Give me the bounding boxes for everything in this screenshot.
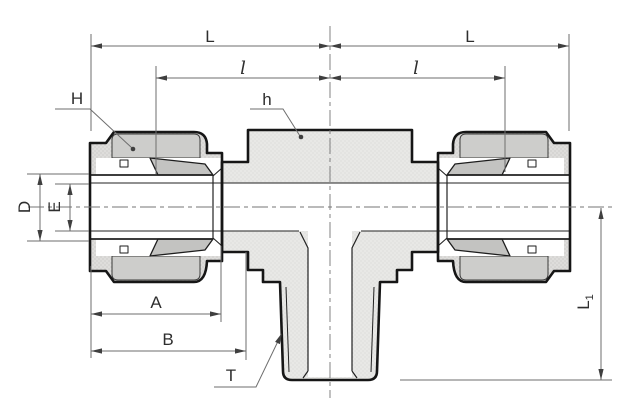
left-nut-lower-band [112, 256, 200, 280]
label-A: A [150, 293, 162, 312]
label-L1-subscript: 1 [584, 294, 596, 300]
arrow-L-left-a [91, 43, 102, 48]
arrow-A-left [91, 311, 102, 316]
label-D: D [15, 201, 34, 213]
arrow-l-right-a [330, 75, 341, 80]
fitting-technical-drawing: L L l l H h D E A B T L1 [0, 0, 629, 412]
label-h: h [262, 90, 271, 109]
arrow-D-top [37, 174, 42, 185]
arrow-D-bottom [37, 230, 42, 241]
arrow-E-top [67, 184, 72, 195]
arrow-l-left-b [319, 75, 330, 80]
arrow-L-left-b [319, 43, 330, 48]
arrow-L1-top [598, 208, 603, 219]
left-bottom-notch [120, 246, 128, 253]
arrow-E-bottom [67, 220, 72, 231]
left-top-notch [120, 160, 128, 167]
right-bottom-notch [528, 246, 536, 253]
leader-T [214, 335, 281, 387]
label-l-left: l [240, 58, 246, 79]
arrow-B-right [235, 348, 246, 353]
arrow-L-right-a [330, 43, 341, 48]
leader-dot-H [131, 147, 136, 152]
arrow-l-left-a [156, 75, 167, 80]
label-L-left: L [205, 27, 214, 46]
label-L1-main: L [574, 300, 593, 309]
label-E: E [45, 201, 64, 212]
arrow-L-right-b [558, 43, 569, 48]
label-L1: L1 [574, 294, 596, 310]
label-l-right: l [413, 58, 419, 79]
drawing-canvas: L L l l H h D E A B T L1 [0, 0, 629, 412]
label-L-right: L [465, 27, 474, 46]
arrow-A-right [210, 311, 221, 316]
arrow-B-left [91, 348, 102, 353]
label-T: T [226, 366, 236, 385]
right-nut-upper-band [460, 134, 548, 158]
arrow-L1-bottom [598, 369, 603, 380]
label-B: B [162, 330, 173, 349]
arrow-l-right-b [494, 75, 505, 80]
leader-dot-h [299, 135, 304, 140]
right-top-notch [528, 160, 536, 167]
label-H: H [71, 89, 83, 108]
right-nut-lower-band [460, 256, 548, 280]
